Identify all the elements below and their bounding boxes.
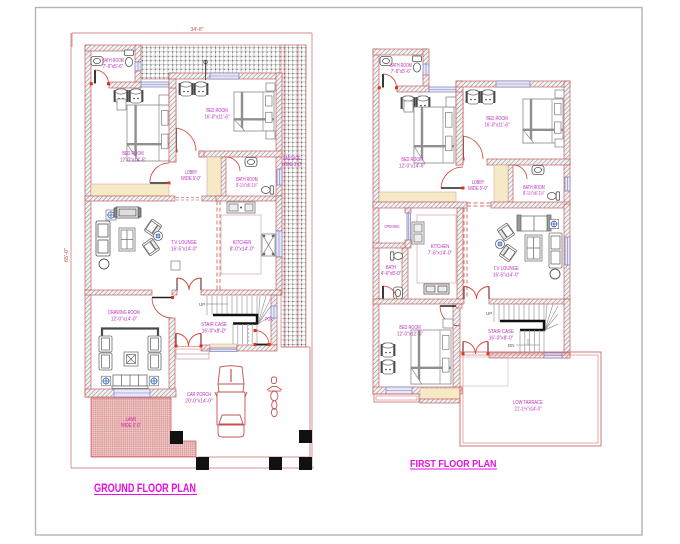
svg-text:UP: UP [486, 311, 492, 316]
svg-text:POR: POR [265, 317, 273, 323]
svg-text:LOW TARRACE21'-1½"x14'-0": LOW TARRACE21'-1½"x14'-0" [513, 400, 543, 413]
svg-text:KITCHEN8'-0"x14'-0": KITCHEN8'-0"x14'-0" [230, 240, 255, 253]
svg-text:OPENING: OPENING [384, 224, 400, 229]
svg-text:DN: DN [508, 343, 515, 348]
svg-text:DRAWING ROOM12'-0"x14'-0": DRAWING ROOM12'-0"x14'-0" [108, 310, 140, 323]
svg-text:BED ROOM16'-0"x11'-6": BED ROOM16'-0"x11'-6" [204, 108, 229, 121]
svg-text:BATH ROOM7'-0"x5'-6": BATH ROOM7'-0"x5'-6" [102, 58, 124, 70]
svg-text:BED ROOM16'-0"x11'-6": BED ROOM16'-0"x11'-6" [484, 116, 509, 129]
svg-text:BATH ROOM8'-1½"x6'-1½": BATH ROOM8'-1½"x6'-1½" [236, 177, 258, 189]
svg-text:UP: UP [199, 302, 205, 307]
svg-text:KITCHEN7'-6"x14'-0": KITCHEN7'-6"x14'-0" [428, 244, 453, 257]
svg-text:FIRST FLOOR PLAN: FIRST FLOOR PLAN [410, 458, 497, 470]
svg-text:BED ROOM12'-0"x12'-6": BED ROOM12'-0"x12'-6" [397, 325, 423, 338]
svg-text:34'-8": 34'-8" [190, 27, 203, 33]
svg-text:65'-0": 65'-0" [64, 248, 70, 262]
svg-text:STAIR CASE16'-0"x8'-0": STAIR CASE16'-0"x8'-0" [201, 322, 227, 335]
svg-text:STAIR CASE16'-0"x8'-0": STAIR CASE16'-0"x8'-0" [488, 329, 514, 342]
svg-text:BED ROOM12'-0"x14'-6": BED ROOM12'-0"x14'-6" [399, 157, 425, 170]
svg-text:T.V LOUNGE16'-5"x14'-0": T.V LOUNGE16'-5"x14'-0" [493, 266, 519, 279]
svg-text:T.V LOUNGE16'-5"x14'-0": T.V LOUNGE16'-5"x14'-0" [171, 240, 197, 253]
svg-text:BATH ROOM7'-0"x5'-6": BATH ROOM7'-0"x5'-6" [390, 63, 412, 75]
svg-text:BED ROOM12'-0"x14'-6": BED ROOM12'-0"x14'-6" [120, 151, 146, 164]
svg-text:GROUND FLOOR PLAN: GROUND FLOOR PLAN [94, 483, 196, 495]
svg-text:CAR PORCH20'-0"x14'-0": CAR PORCH20'-0"x14'-0" [185, 392, 212, 405]
svg-text:PASSAGEWIDE 3'-0": PASSAGEWIDE 3'-0" [282, 156, 302, 168]
svg-text:BATH ROOM8'-1½"x6'-1½": BATH ROOM8'-1½"x6'-1½" [523, 185, 545, 197]
